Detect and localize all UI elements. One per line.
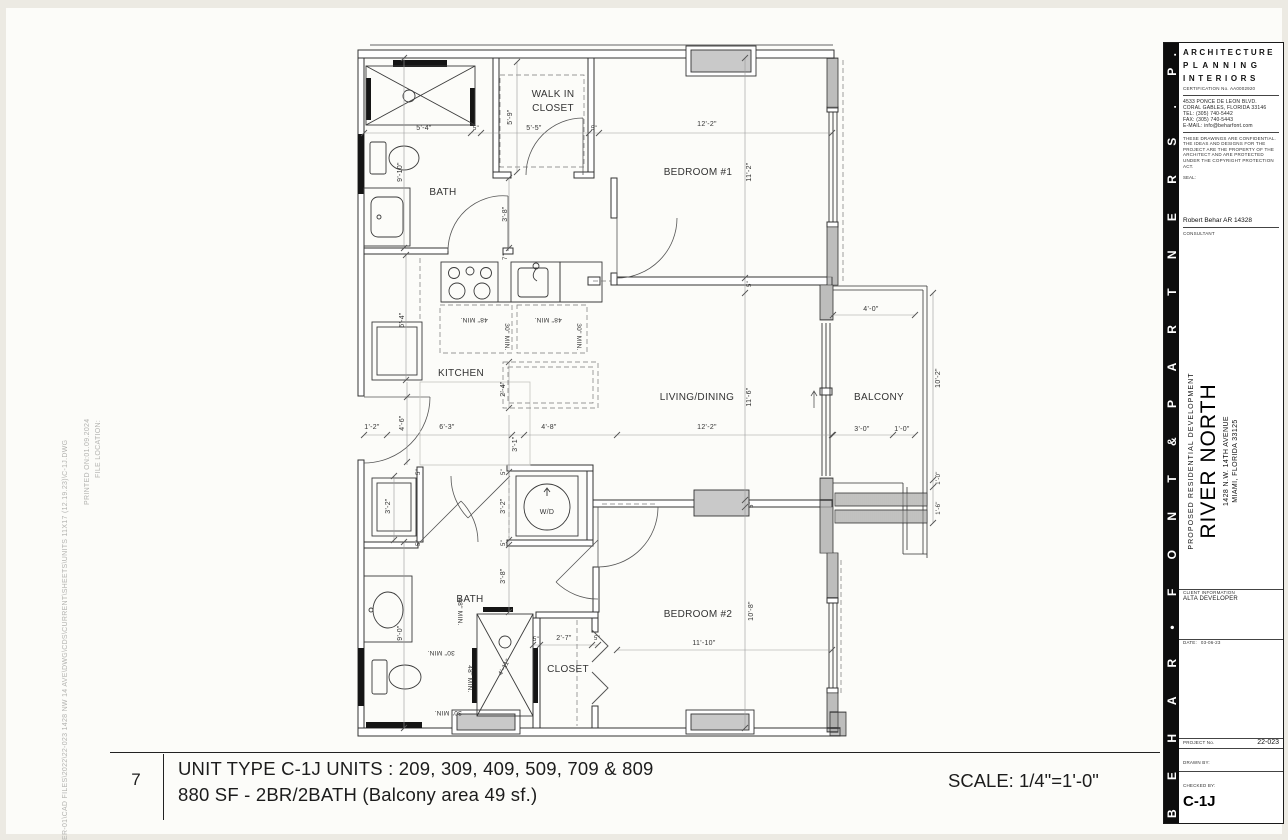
dimension-label: 3'-8" — [502, 206, 509, 222]
project-title-rotated: PROPOSED RESIDENTIAL DEVELOPMENT RIVER N… — [1179, 311, 1283, 611]
dimension-label: 30" MIN. — [427, 649, 454, 656]
room-label-bedroom2: BEDROOM #2 — [664, 609, 733, 620]
room-label-balcony: BALCONY — [854, 392, 904, 403]
file-location-label: FILE LOCATION: — [95, 420, 102, 478]
plan-windows — [452, 46, 837, 734]
firm-address-2: CORAL GABLES, FLORIDA 33146 — [1183, 105, 1279, 111]
firm-service-1: ARCHITECTURE — [1183, 48, 1279, 57]
dimension-label: 4'-8" — [541, 424, 557, 431]
dimension-label: 48" MIN. — [466, 665, 473, 692]
shower-1 — [366, 66, 475, 125]
dimension-label: 5'-5" — [526, 125, 542, 132]
dimension-label: 11'-6" — [746, 387, 753, 406]
unit-type-title: UNIT TYPE C-1J UNITS : 209, 309, 409, 50… — [178, 758, 654, 780]
architect-name: Robert Behar AR 14328 — [1183, 217, 1279, 224]
copyright-disclaimer: THESE DRAWINGS ARE CONFIDENTIAL. THE IDE… — [1183, 136, 1279, 170]
dimension-label: 2'-4" — [500, 381, 507, 397]
door-bedroom2 — [598, 507, 658, 567]
firm-service-3: INTERIORS — [1183, 74, 1279, 83]
floor-plan-drawing: BATHWALK INCLOSETBEDROOM #1KITCHENLIVING… — [0, 0, 1288, 840]
dimension-label: 5" — [747, 281, 753, 287]
dimension-label: 11'-10" — [692, 640, 716, 647]
dimension-label: 30" MIN. — [434, 709, 461, 716]
dimension-label: 5" — [416, 540, 422, 546]
titlebar-divider — [163, 754, 164, 820]
dimension-label: 6'-4" — [399, 312, 406, 328]
dimension-label: 1'-0" — [894, 426, 910, 433]
titlebar-rule — [110, 752, 1160, 753]
drawn-by-label: DRAWN BY: — [1183, 760, 1210, 765]
room-label-walkin-2: CLOSET — [532, 103, 574, 114]
printed-on-stamp: PRINTED ON:01.09.2024 — [84, 419, 91, 505]
seal-label: SEAL: — [1183, 175, 1279, 180]
plan-dimension-lines — [364, 58, 933, 728]
stove — [441, 262, 498, 302]
project-address-2: MIAMI, FLORIDA 33125 — [1232, 311, 1239, 611]
dimension-label: 3'-2" — [500, 498, 507, 514]
sink-vanity-2 — [364, 576, 412, 642]
washer-dryer — [516, 476, 578, 536]
scale-note: SCALE: 1/4"=1'-0" — [948, 770, 1099, 792]
room-label-kitchen: KITCHEN — [438, 368, 484, 379]
toilet-1 — [370, 142, 419, 174]
divider — [1183, 132, 1279, 133]
title-block-panel: ARCHITECTURE PLANNING INTERIORS CERTIFIC… — [1179, 43, 1283, 823]
sink-vanity-1 — [364, 188, 410, 246]
dimension-label: 10'-8" — [748, 601, 755, 621]
washer-dryer-label: W/D — [540, 509, 555, 516]
dimension-label: 3'-1" — [512, 436, 519, 452]
dimension-label: 2'-7" — [556, 635, 572, 642]
plan-dimension-ticks — [361, 55, 936, 731]
project-name: RIVER NORTH — [1197, 311, 1221, 611]
dimension-label: 5'-4" — [416, 125, 432, 132]
plan-walls — [358, 45, 840, 736]
dimension-label: 3'-0" — [854, 426, 870, 433]
room-label-living: LIVING/DINING — [660, 392, 734, 403]
firm-certification: CERTIFICATION No. AA0002920 — [1183, 86, 1279, 92]
dimension-label: 10'-2" — [935, 368, 942, 388]
dimension-label: 7" — [503, 254, 509, 260]
dimension-label: 12'-2" — [697, 424, 717, 431]
divider — [1183, 95, 1279, 96]
slider-arrow — [811, 391, 817, 408]
door-bedroom1 — [617, 218, 677, 278]
title-block: B E H A R • F O N T & P A R T N E R S . … — [1163, 42, 1284, 824]
dimension-label: 5'-9" — [507, 109, 514, 125]
firm-email: E-MAIL: info@beharfont.com — [1183, 123, 1279, 129]
dimension-label: 1'-6" — [936, 501, 942, 514]
dimension-label: 48" MIN. — [456, 598, 463, 625]
dimension-label: 30" MIN. — [575, 323, 582, 350]
date-label: DATE: — [1183, 640, 1197, 646]
divider — [1179, 748, 1283, 749]
project-no-value: 22-023 — [1257, 739, 1279, 746]
dimension-label: 3'-2" — [385, 498, 392, 514]
dimension-label: 5" — [416, 469, 422, 475]
file-path: ER-01\CAD FILES\2022\22-023 1428 NW 14 A… — [62, 440, 69, 840]
dimension-label: 9'-10" — [397, 162, 404, 182]
room-label-closet: CLOSET — [547, 664, 589, 675]
dimension-label: 5" — [473, 126, 479, 132]
date-value: 03-06-23 — [1201, 640, 1221, 646]
dimension-label: 1'-0" — [936, 471, 942, 484]
dimension-label: 5" — [594, 636, 600, 642]
checked-by-label: CHECKED BY: — [1183, 783, 1215, 788]
unit-area-subtitle: 880 SF - 2BR/2BATH (Balcony area 49 sf.) — [178, 784, 537, 806]
dimension-label: 9'-0" — [397, 625, 404, 641]
dimension-label: 5" — [533, 637, 539, 643]
dimension-label: 30" MIN. — [503, 323, 510, 350]
dimension-label: 4'-6" — [399, 415, 406, 431]
divider — [1179, 771, 1283, 772]
toilet-2 — [372, 660, 421, 694]
project-address-1: 1428 N.W. 14TH AVENUE — [1223, 311, 1230, 611]
dimension-label: 1'-2" — [364, 424, 380, 431]
door-hall — [556, 540, 598, 599]
room-label-bath-1: BATH — [429, 187, 456, 198]
consultant-label: CONSULTANT — [1183, 231, 1279, 237]
door-bath2 — [420, 501, 478, 542]
firm-name-strip: B E H A R • F O N T & P A R T N E R S . … — [1164, 43, 1179, 823]
detail-number: 7 — [116, 770, 156, 790]
kitchen-sink — [511, 262, 560, 302]
firm-name: B E H A R • F O N T & P A R T N E R S . … — [1165, 48, 1179, 818]
dimension-label: 12'-2" — [697, 121, 717, 128]
refrigerator — [372, 322, 422, 380]
dimension-label: 5" — [749, 502, 755, 508]
plan-text-layer: BATHWALK INCLOSETBEDROOM #1KITCHENLIVING… — [364, 89, 942, 716]
project-type: PROPOSED RESIDENTIAL DEVELOPMENT — [1188, 311, 1195, 611]
dimension-label: 6'-3" — [439, 424, 455, 431]
dimension-label: 3'-8" — [500, 568, 507, 584]
dimension-label: 4'-0" — [863, 306, 879, 313]
firm-service-2: PLANNING — [1183, 61, 1279, 70]
client-name: ALTA DEVELOPER — [1183, 596, 1279, 602]
room-label-walkin-1: WALK IN — [532, 89, 575, 100]
dimension-label: 5" — [501, 469, 507, 475]
sheet-number: C-1J — [1179, 791, 1283, 812]
divider — [1183, 227, 1279, 228]
dimension-label: 11'-2" — [746, 162, 753, 181]
architectural-sheet: { "titlebar": { "number": "7", "line1": … — [0, 0, 1288, 840]
dimension-label: 5" — [501, 540, 507, 546]
dimension-label: 5" — [591, 126, 597, 132]
dimension-label: 48" MIN. — [534, 316, 561, 323]
door-bath1 — [448, 196, 508, 251]
project-no-label: PROJECT No. — [1183, 740, 1214, 746]
room-label-bedroom1: BEDROOM #1 — [664, 167, 733, 178]
dimension-label: 48" MIN. — [460, 316, 487, 323]
